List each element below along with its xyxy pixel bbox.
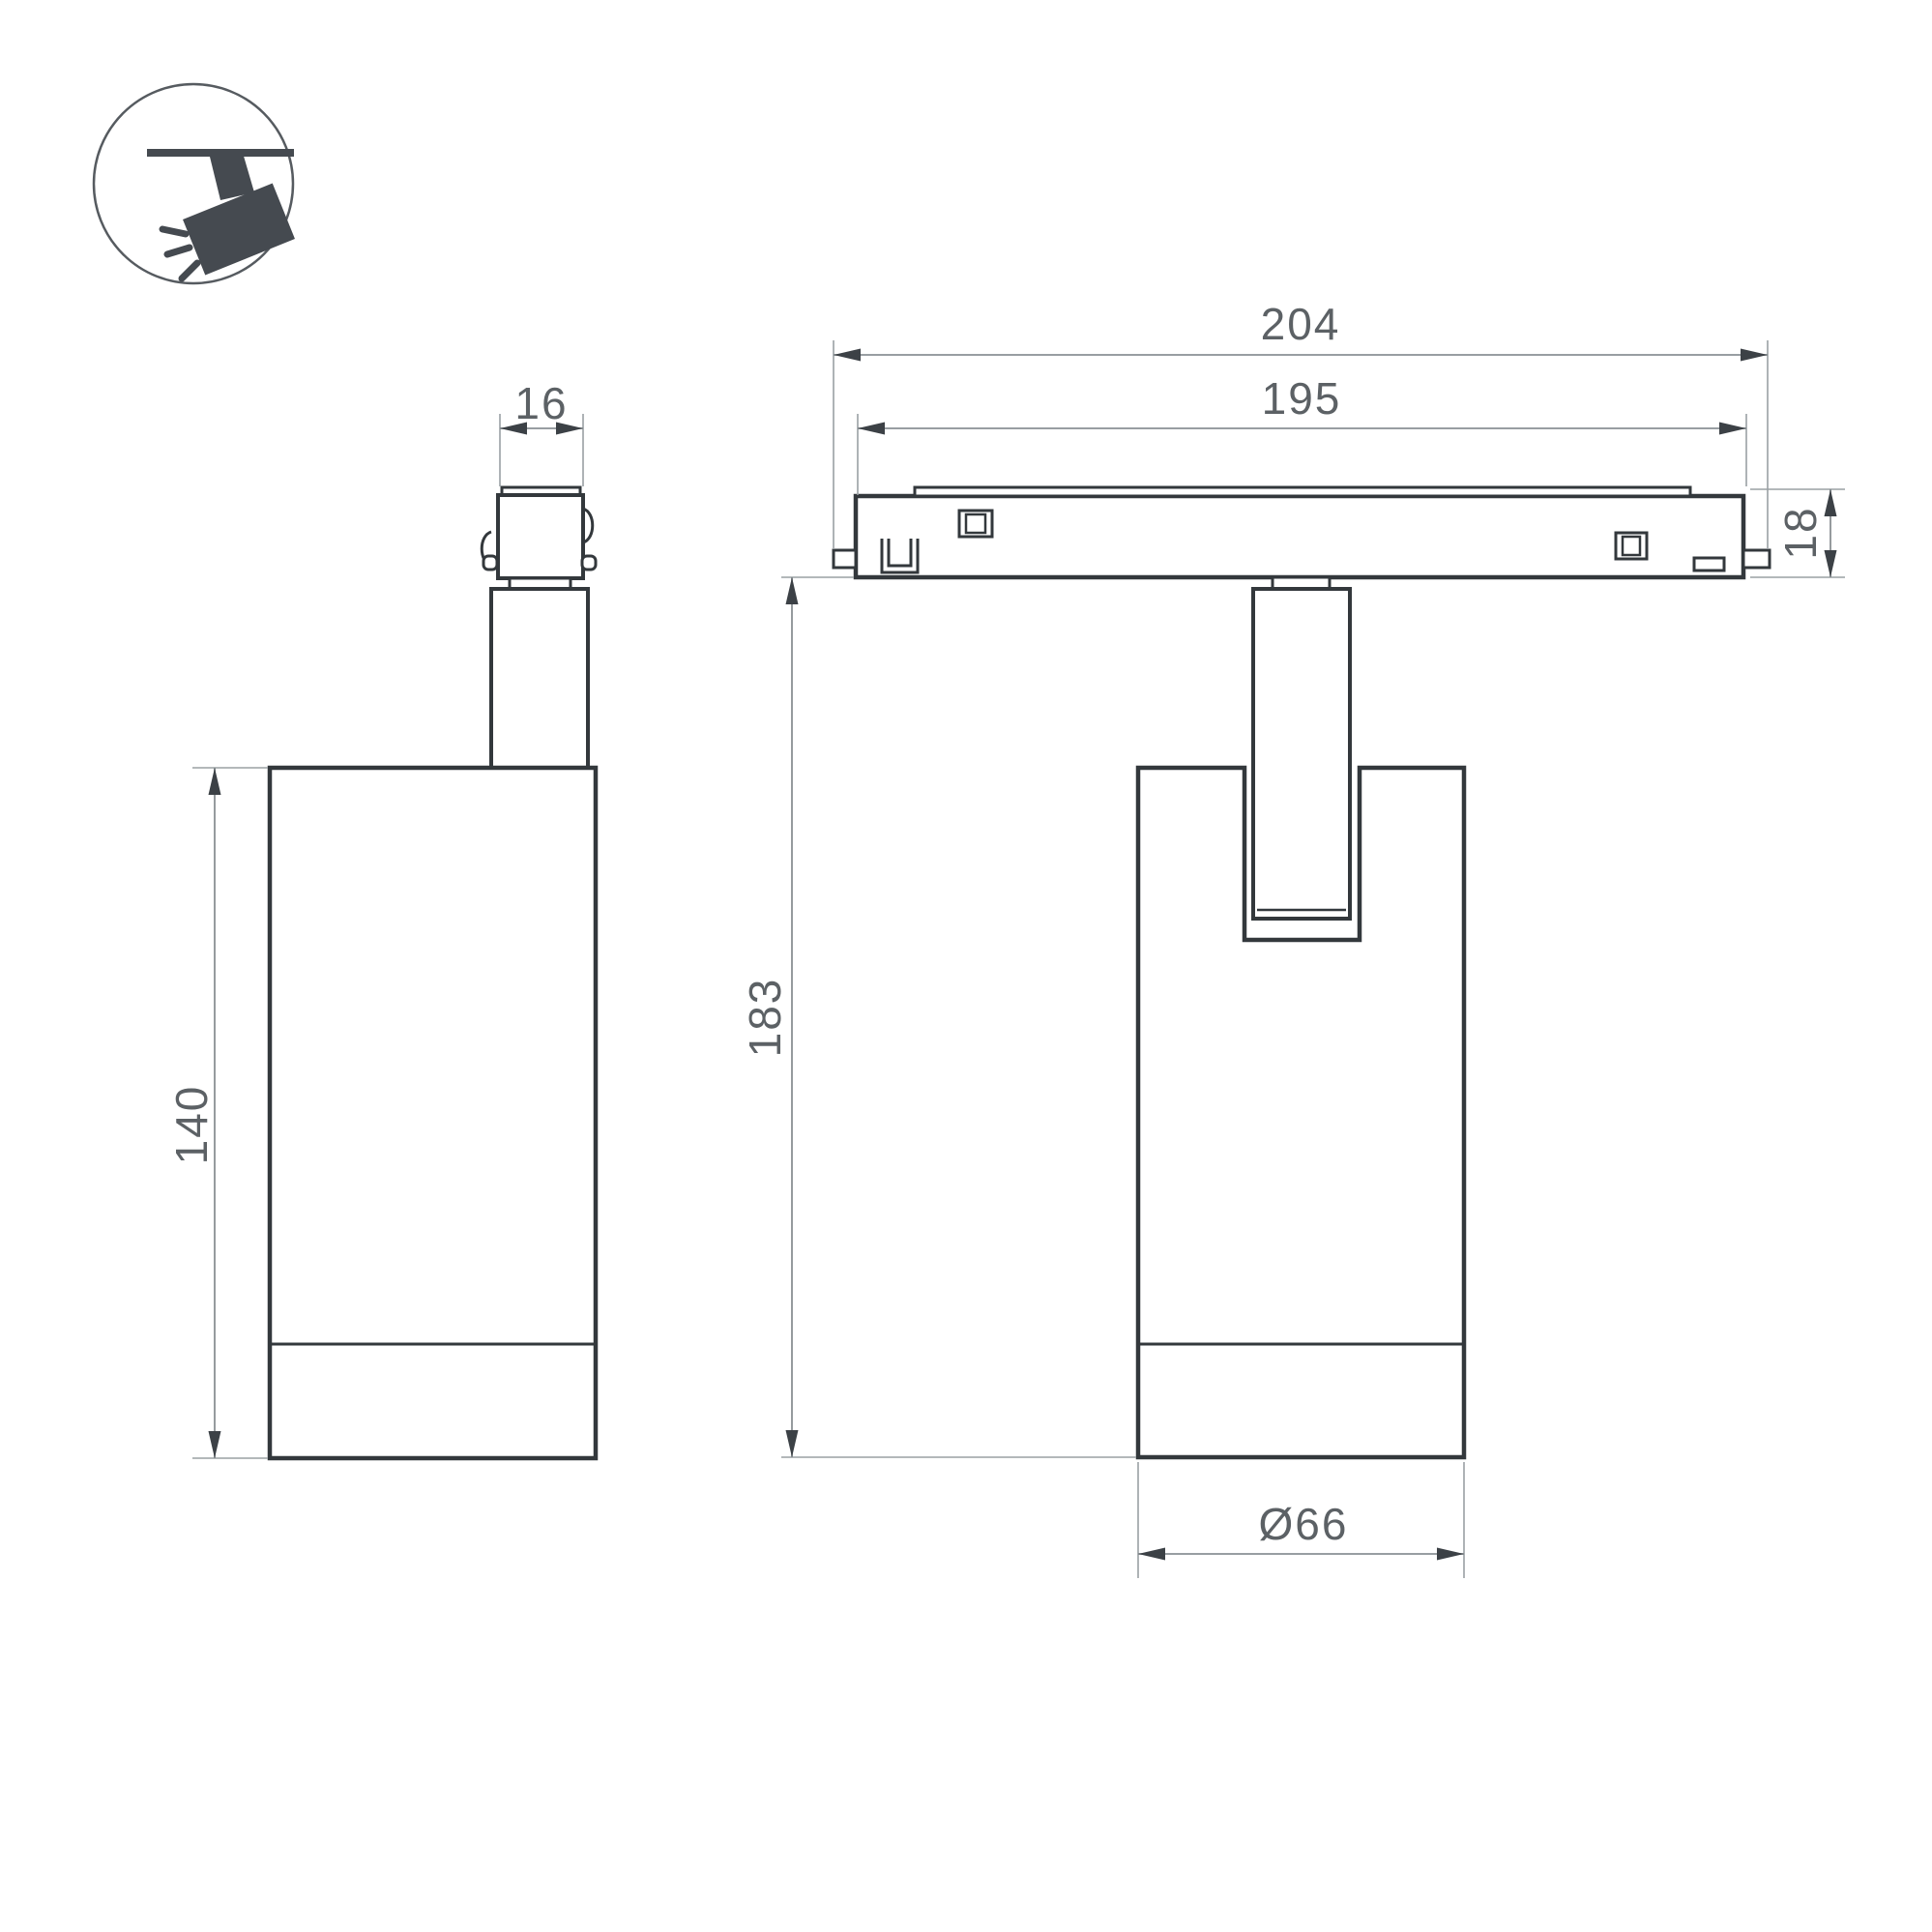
- lamp-body-side: [270, 768, 596, 1458]
- track-cover-strip: [915, 487, 1690, 496]
- track-spotlight-icon: [94, 84, 295, 283]
- dim-track-body-length: 195: [858, 373, 1746, 495]
- icon-light-ray: [162, 229, 186, 234]
- arrowhead: [1437, 1548, 1464, 1561]
- icon-track-stem: [209, 153, 254, 200]
- dim-label: Ø66: [1259, 1499, 1349, 1549]
- technical-drawing-canvas: 16 204 195 18 183: [0, 0, 1932, 1932]
- connector-ear-left: [483, 556, 497, 570]
- arrowhead: [209, 1431, 221, 1458]
- slot-cutout: [1694, 558, 1724, 571]
- drawing-page: 16 204 195 18 183: [0, 0, 1932, 1932]
- track-end-tab-right: [1743, 550, 1770, 568]
- arrowhead: [1741, 349, 1768, 362]
- pivot-arm-side: [491, 589, 588, 768]
- dim-label: 195: [1262, 373, 1342, 424]
- arrowhead: [1825, 550, 1837, 577]
- dim-label: 18: [1775, 506, 1826, 559]
- arrowhead: [1138, 1548, 1165, 1561]
- arrowhead: [858, 423, 885, 435]
- arrowhead: [786, 1430, 799, 1457]
- dim-body-height: 140: [166, 768, 268, 1458]
- track-end-tab-left: [834, 550, 856, 568]
- dim-label: 16: [514, 378, 568, 428]
- dim-fixture-height: 183: [740, 577, 1136, 1457]
- arrowhead: [786, 577, 799, 604]
- icon-light-ray: [182, 263, 197, 278]
- arrowhead: [1719, 423, 1746, 435]
- arrowhead: [1825, 489, 1837, 516]
- connector-box: [498, 495, 583, 578]
- connector-ear-right: [582, 556, 596, 570]
- dim-body-diameter: Ø66: [1138, 1462, 1464, 1578]
- front-view: [834, 487, 1770, 1457]
- arrowhead: [834, 349, 861, 362]
- dim-label: 183: [740, 978, 790, 1058]
- dim-label: 204: [1261, 299, 1341, 349]
- icon-light-ray: [167, 248, 190, 254]
- dim-connector-width: 16: [500, 378, 583, 486]
- pivot-arm-front: [1253, 589, 1350, 919]
- side-view: [270, 487, 596, 1458]
- dim-label: 140: [166, 1085, 217, 1165]
- icon-circle: [94, 84, 293, 283]
- arrowhead: [209, 768, 221, 795]
